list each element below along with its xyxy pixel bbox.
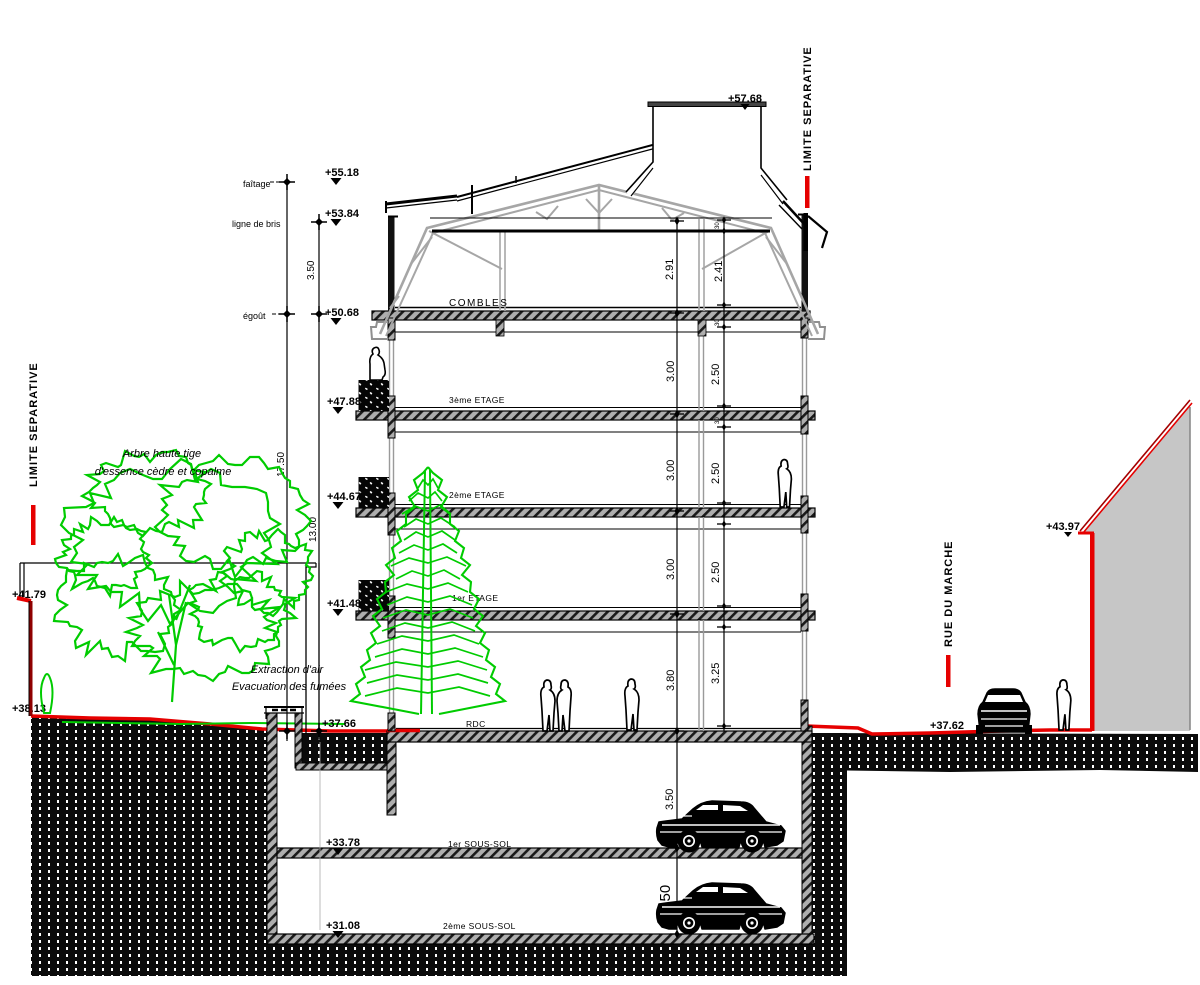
svg-text:3.50: 3.50 xyxy=(306,260,317,280)
svg-text:2ème SOUS-SOL: 2ème SOUS-SOL xyxy=(443,921,516,931)
svg-text:+53.84: +53.84 xyxy=(325,208,360,220)
svg-text:égoût: égoût xyxy=(243,311,266,321)
svg-text:3.00: 3.00 xyxy=(665,460,677,481)
svg-text:Evacuation des fumées: Evacuation des fumées xyxy=(232,681,347,693)
svg-text:2.50: 2.50 xyxy=(710,463,722,484)
svg-text:LIMITE SEPARATIVE: LIMITE SEPARATIVE xyxy=(28,362,40,487)
svg-text:COMBLES: COMBLES xyxy=(449,298,508,309)
svg-text:+37.66: +37.66 xyxy=(322,718,356,730)
svg-text:ligne de bris: ligne de bris xyxy=(232,219,281,229)
svg-text:+44.67: +44.67 xyxy=(327,491,361,503)
svg-text:+47.88: +47.88 xyxy=(327,396,361,408)
svg-text:+31.08: +31.08 xyxy=(326,920,360,932)
svg-text:Extraction d'air: Extraction d'air xyxy=(251,664,325,676)
svg-text:3.00: 3.00 xyxy=(665,559,677,580)
svg-text:1er ETAGE: 1er ETAGE xyxy=(452,593,498,603)
svg-text:faîtage: faîtage xyxy=(243,179,271,189)
svg-text:30: 30 xyxy=(715,417,721,424)
svg-text:Arbre haute tige: Arbre haute tige xyxy=(122,448,201,460)
svg-text:RDC: RDC xyxy=(466,719,486,729)
svg-text:30: 30 xyxy=(715,319,721,326)
svg-text:3.80: 3.80 xyxy=(665,670,677,691)
svg-text:+37.62: +37.62 xyxy=(930,720,964,732)
svg-text:+57.68: +57.68 xyxy=(728,93,762,105)
svg-text:1er SOUS-SOL: 1er SOUS-SOL xyxy=(448,839,511,849)
svg-text:3.25: 3.25 xyxy=(710,663,722,684)
svg-text:2ème ETAGE: 2ème ETAGE xyxy=(449,490,505,500)
svg-text:3ème ETAGE: 3ème ETAGE xyxy=(449,395,505,405)
svg-text:2.50: 2.50 xyxy=(710,562,722,583)
svg-text:d'essence cèdre et copalme: d'essence cèdre et copalme xyxy=(95,466,232,478)
svg-text:2.91: 2.91 xyxy=(664,259,676,280)
svg-text:+43.97: +43.97 xyxy=(1046,521,1080,533)
svg-text:+50.68: +50.68 xyxy=(325,307,359,319)
svg-text:2.41: 2.41 xyxy=(713,261,725,282)
svg-text:30: 30 xyxy=(715,222,721,229)
svg-text:2.50: 2.50 xyxy=(710,364,722,385)
svg-text:+33.78: +33.78 xyxy=(326,837,360,849)
svg-text:+55.18: +55.18 xyxy=(325,167,359,179)
svg-text:+41.48: +41.48 xyxy=(327,598,361,610)
svg-text:RUE DU MARCHE: RUE DU MARCHE xyxy=(943,541,955,648)
svg-text:3.50: 3.50 xyxy=(664,789,676,810)
svg-text:3.00: 3.00 xyxy=(665,361,677,382)
svg-text:LIMITE SEPARATIVE: LIMITE SEPARATIVE xyxy=(802,46,814,171)
